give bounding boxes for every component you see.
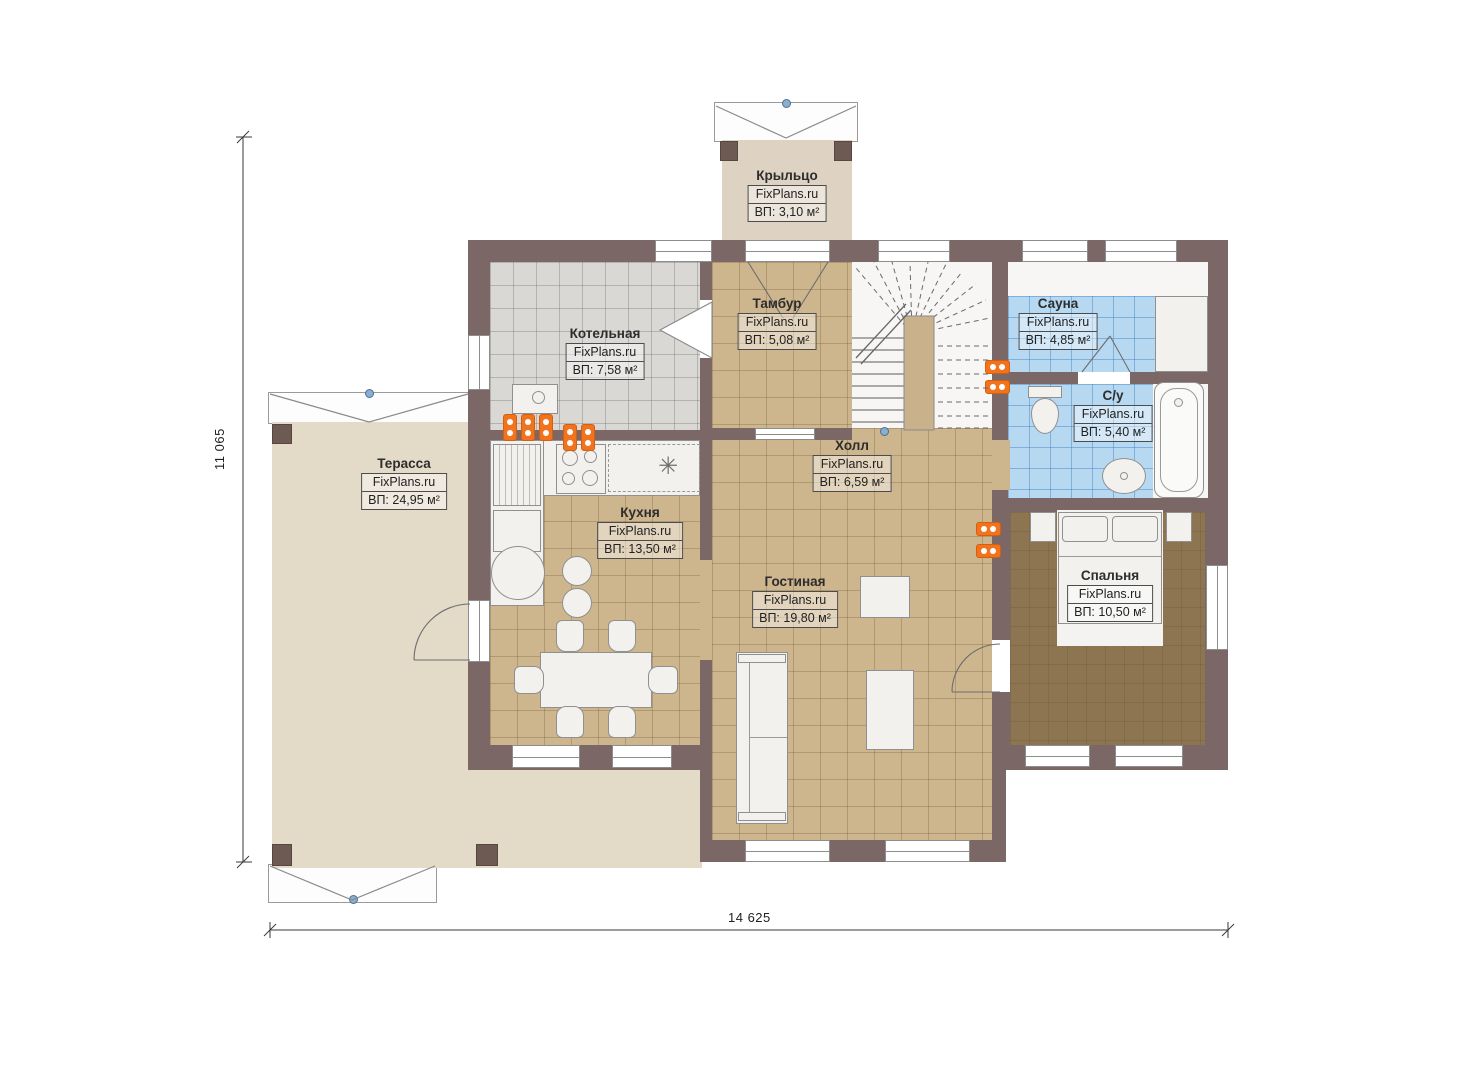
room-label-living: Гостиная FixPlans.ru ВП: 19,80 м² (752, 574, 838, 628)
brand-watermark: FixPlans.ru (753, 592, 837, 609)
bedroom-door-opening (992, 640, 1010, 692)
stool (562, 588, 592, 618)
window (1025, 745, 1090, 767)
dimension-height: 11 065 (212, 428, 227, 470)
freezer-snowflake-icon: ✳ (658, 452, 678, 481)
room-area: ВП: 3,10 м² (749, 203, 826, 221)
window (878, 240, 950, 262)
chair (608, 706, 636, 738)
nightstand (1166, 512, 1192, 542)
window (745, 840, 830, 862)
brand-watermark: FixPlans.ru (739, 314, 816, 331)
kitchen-living-opening (700, 560, 712, 660)
sofa (736, 652, 788, 824)
window (655, 240, 712, 262)
room-name: Холл (813, 438, 892, 453)
radiator-icon (521, 414, 535, 441)
window (1206, 565, 1228, 650)
room-label-kitchen: Кухня FixPlans.ru ВП: 13,50 м² (597, 505, 683, 559)
tambour-door-opening (755, 428, 815, 440)
marker-dot (880, 427, 889, 436)
boiler-dial (532, 391, 545, 404)
stove-burner (562, 450, 578, 466)
radiator-icon (503, 414, 517, 441)
room-name: Кухня (597, 505, 683, 520)
toilet-tank (1028, 386, 1062, 398)
radiator-icon (581, 424, 595, 451)
radiator-icon (976, 544, 1001, 558)
room-name: Котельная (566, 326, 645, 341)
room-area: ВП: 4,85 м² (1020, 331, 1097, 349)
room-name: Гостиная (752, 574, 838, 589)
sofa-armrest (738, 654, 786, 663)
window (612, 745, 672, 768)
sauna-bench (1155, 296, 1208, 372)
brand-watermark: FixPlans.ru (362, 474, 446, 491)
room-label-hall: Холл FixPlans.ru ВП: 6,59 м² (813, 438, 892, 492)
sofa-armrest (738, 812, 786, 821)
marker-dot (782, 99, 791, 108)
room-label-boiler: Котельная FixPlans.ru ВП: 7,58 м² (566, 326, 645, 380)
sink-drain (1120, 472, 1128, 480)
room-area: ВП: 5,08 м² (739, 331, 816, 349)
nightstand (1030, 512, 1056, 542)
terrace-wrap-floor (468, 768, 702, 868)
window (468, 335, 490, 390)
brand-watermark: FixPlans.ru (1075, 406, 1152, 423)
room-area: ВП: 13,50 м² (598, 540, 682, 558)
chair (556, 706, 584, 738)
room-area: ВП: 5,40 м² (1075, 423, 1152, 441)
chair (608, 620, 636, 652)
room-label-bathroom: С/у FixPlans.ru ВП: 5,40 м² (1074, 388, 1153, 442)
bathroom-door-opening (992, 440, 1010, 490)
dimension-width: 14 625 (728, 910, 771, 925)
window (1105, 240, 1177, 262)
room-label-sauna: Сауна FixPlans.ru ВП: 4,85 м² (1019, 296, 1098, 350)
room-label-porch: Крыльцо FixPlans.ru ВП: 3,10 м² (748, 168, 827, 222)
staircase-floor (852, 262, 992, 430)
room-area: ВП: 7,58 м² (567, 361, 644, 379)
stool (562, 556, 592, 586)
coffee-table (866, 670, 914, 750)
terrace-door-opening (468, 600, 490, 662)
brand-watermark: FixPlans.ru (567, 344, 644, 361)
radiator-icon (563, 424, 577, 451)
fridge (493, 444, 541, 506)
stove-burner (582, 470, 598, 486)
brand-watermark: FixPlans.ru (749, 186, 826, 203)
porch-post (720, 141, 738, 161)
room-label-terrace: Терасса FixPlans.ru ВП: 24,95 м² (361, 456, 447, 510)
terrace-post (272, 424, 292, 444)
window (1022, 240, 1088, 262)
room-name: Тамбур (738, 296, 817, 311)
room-name: Сауна (1019, 296, 1098, 311)
chair (648, 666, 678, 694)
room-area: ВП: 19,80 м² (753, 609, 837, 627)
kitchen-round-table (491, 546, 545, 600)
blanket-line (1058, 556, 1162, 557)
room-name: Крыльцо (748, 168, 827, 183)
dining-table (540, 652, 652, 708)
room-area: ВП: 6,59 м² (814, 473, 891, 491)
terrace-post (476, 844, 498, 866)
brand-watermark: FixPlans.ru (598, 523, 682, 540)
boiler-door-opening (700, 300, 712, 358)
floor-plan: ✳ (0, 0, 1474, 1080)
pillow (1112, 516, 1158, 542)
sofa-seat-line (750, 737, 787, 738)
radiator-icon (985, 380, 1010, 394)
sauna-door-opening (1078, 372, 1130, 384)
radiator-icon (539, 414, 553, 441)
radiator-icon (985, 360, 1010, 374)
room-name: Спальня (1067, 568, 1153, 583)
entrance-door-opening (745, 240, 830, 262)
stove-burner (584, 450, 597, 463)
sofa-back-line (749, 656, 750, 820)
chair (514, 666, 544, 694)
room-area: ВП: 10,50 м² (1068, 603, 1152, 621)
room-area: ВП: 24,95 м² (362, 491, 446, 509)
marker-dot (365, 389, 374, 398)
worktop (608, 444, 700, 492)
porch-canopy (714, 102, 858, 142)
room-label-tambour: Тамбур FixPlans.ru ВП: 5,08 м² (738, 296, 817, 350)
hall-table (860, 576, 910, 618)
window (1115, 745, 1183, 767)
room-name: С/у (1074, 388, 1153, 403)
brand-watermark: FixPlans.ru (814, 456, 891, 473)
stove-burner (562, 472, 575, 485)
room-label-bedroom: Спальня FixPlans.ru ВП: 10,50 м² (1067, 568, 1153, 622)
radiator-icon (976, 522, 1001, 536)
terrace-post (272, 844, 292, 866)
brand-watermark: FixPlans.ru (1068, 586, 1152, 603)
chair (556, 620, 584, 652)
window (885, 840, 970, 862)
bathtub-drain (1174, 398, 1183, 407)
room-name: Терасса (361, 456, 447, 471)
marker-dot (349, 895, 358, 904)
brand-watermark: FixPlans.ru (1020, 314, 1097, 331)
porch-post (834, 141, 852, 161)
pillow (1062, 516, 1108, 542)
window (512, 745, 580, 768)
